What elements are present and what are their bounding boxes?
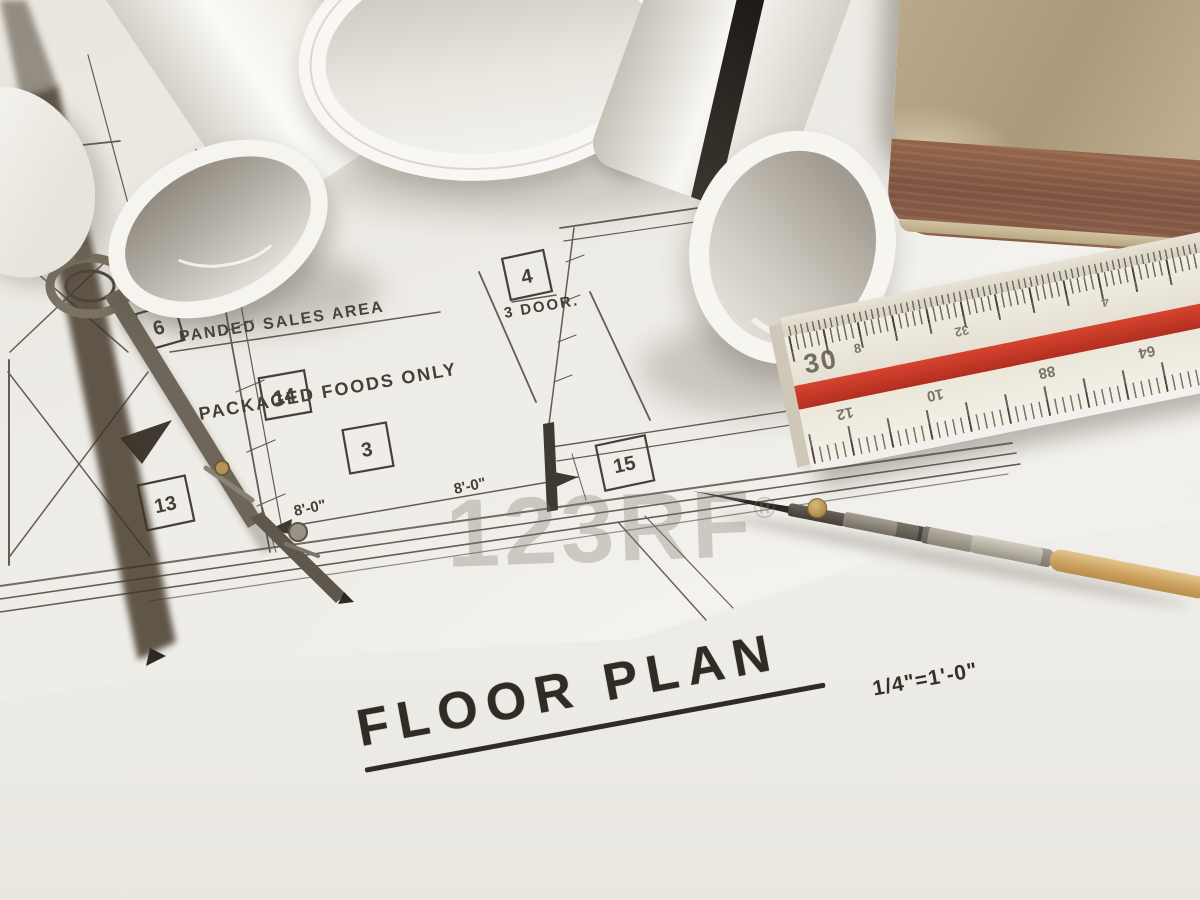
keynote-4: 4: [519, 265, 535, 289]
stock-watermark: 123RF®: [444, 468, 782, 590]
ruler-bottom-number: 12: [835, 403, 855, 423]
ruler-scale-label: 30: [801, 343, 841, 380]
keynote-3: 3: [360, 438, 375, 462]
label-dim-a: 8'-0": [292, 497, 327, 520]
watermark-text: 123RF: [444, 470, 756, 588]
ruler-bottom-number: 10: [925, 385, 945, 405]
label-3-door: 3 DOOR.: [503, 292, 580, 322]
photo-stage: 18 6 14 3 13 15 4 PANDED SALES AREA PACK…: [0, 0, 1200, 900]
compass-brass-screw: [215, 461, 229, 475]
ruler-bottom-number: 64: [1137, 342, 1157, 362]
watermark-registered-mark: ®: [753, 491, 780, 525]
compass-hinge-knob: [289, 523, 307, 541]
ruler-bottom-number: 88: [1037, 362, 1057, 382]
compass-leg-far: [0, 0, 58, 96]
paper-roll-left-spiral: [156, 191, 286, 277]
ruler-top-number: 32: [953, 322, 970, 340]
keynote-13: 13: [152, 492, 178, 518]
